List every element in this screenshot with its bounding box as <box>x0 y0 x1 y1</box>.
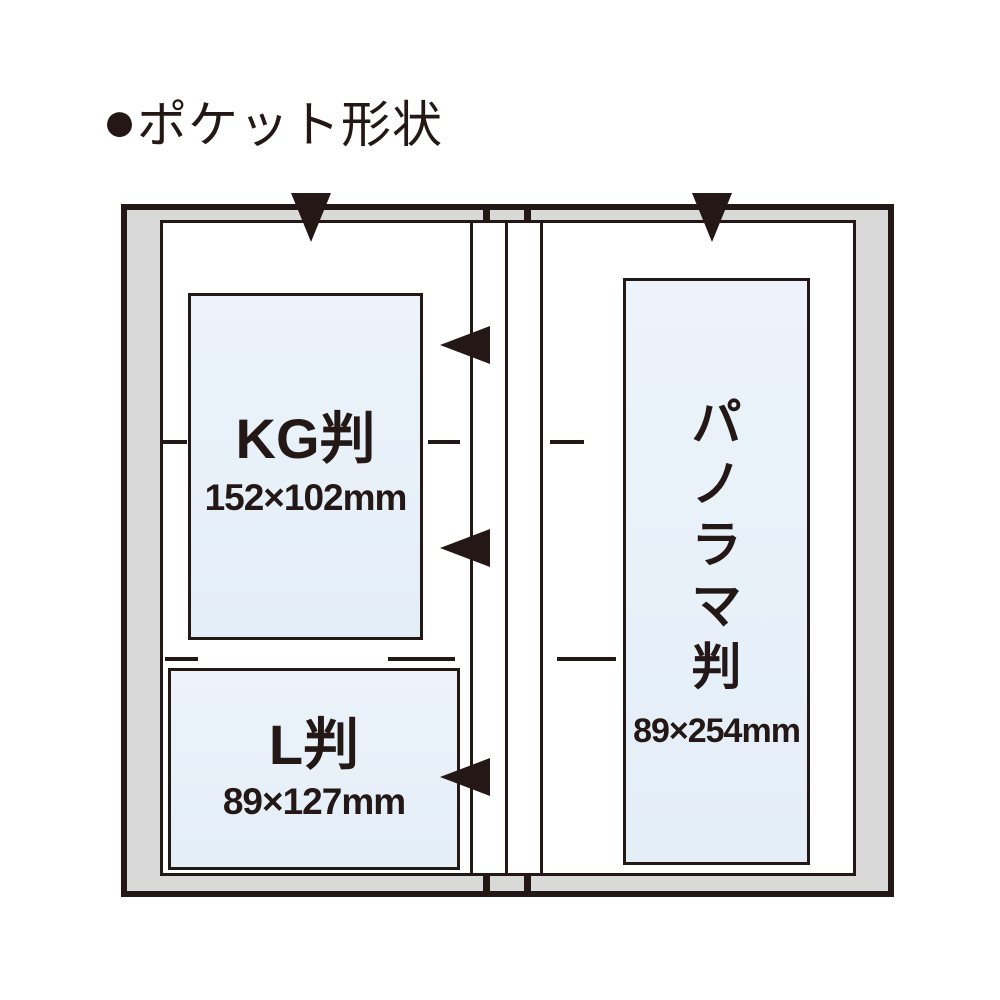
pocket-opening-mark <box>557 657 616 661</box>
cover-spine-divider <box>524 207 531 223</box>
right-page-edge-line <box>540 223 543 873</box>
bullet-icon: ● <box>102 93 137 151</box>
panorama-label-char: マ <box>626 576 807 637</box>
left-arrow-icon <box>440 758 490 796</box>
down-arrow-icon <box>692 193 732 242</box>
pocket-opening-mark <box>550 440 584 444</box>
pocket-panorama: パ ノ ラ マ 判 89×254mm <box>623 278 810 865</box>
pocket-l-label: L判 <box>171 717 457 773</box>
cover-spine-divider <box>524 873 531 892</box>
pocket-panorama-label: パ ノ ラ マ 判 <box>626 393 807 698</box>
pocket-opening-mark <box>163 440 187 444</box>
pocket-shape-diagram: ● ポケット形状 KG判 152×102mm L判 89×127mm パ ノ ラ… <box>0 0 1000 1000</box>
panorama-label-char: ラ <box>626 515 807 576</box>
cover-spine-divider <box>483 207 490 223</box>
pocket-opening-mark <box>165 657 198 661</box>
pocket-l-size: 89×127mm <box>171 783 457 821</box>
pocket-kg-label: KG判 <box>191 411 420 467</box>
pocket-panorama-size: 89×254mm <box>626 712 807 750</box>
panorama-label-char: ノ <box>626 454 807 515</box>
pocket-opening-mark <box>388 657 455 661</box>
pocket-l: L判 89×127mm <box>168 668 460 870</box>
pocket-kg-size: 152×102mm <box>191 479 420 517</box>
panorama-label-char: 判 <box>626 637 807 698</box>
panorama-label-char: パ <box>626 393 807 454</box>
pocket-kg: KG判 152×102mm <box>188 293 423 640</box>
page-title: ● ポケット形状 <box>102 96 443 154</box>
page-title-text: ポケット形状 <box>137 96 443 154</box>
left-arrow-icon <box>440 326 490 364</box>
cover-spine-divider <box>483 873 490 892</box>
pocket-opening-mark <box>428 440 460 444</box>
spine-center-line <box>505 223 508 873</box>
down-arrow-icon <box>291 193 331 242</box>
left-arrow-icon <box>440 529 490 567</box>
